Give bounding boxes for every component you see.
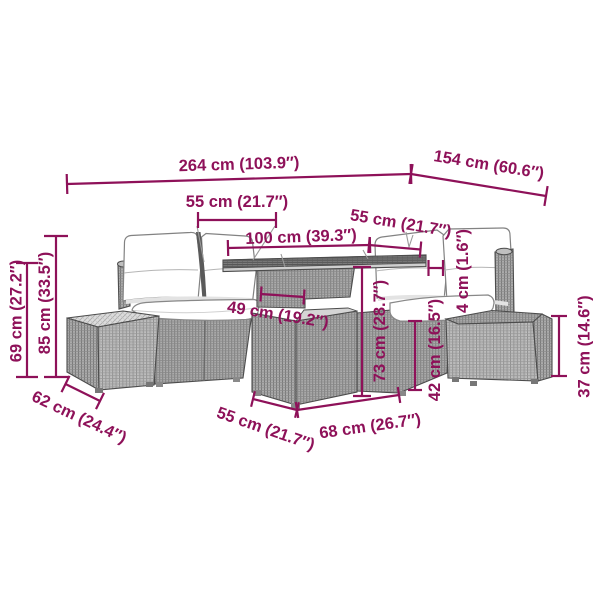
- svg-text:55 cm (21.7″): 55 cm (21.7″): [186, 193, 288, 211]
- svg-text:85 cm (33.5″): 85 cm (33.5″): [36, 252, 54, 354]
- svg-text:42 cm (16.5″): 42 cm (16.5″): [426, 299, 444, 401]
- svg-text:4 cm (1.6″): 4 cm (1.6″): [454, 229, 472, 313]
- svg-text:69 cm (27.2″): 69 cm (27.2″): [8, 260, 26, 362]
- svg-text:73 cm (28.7″): 73 cm (28.7″): [371, 280, 389, 382]
- svg-text:37 cm (14.6″): 37 cm (14.6″): [576, 295, 594, 397]
- svg-text:264 cm (103.9″): 264 cm (103.9″): [178, 154, 299, 176]
